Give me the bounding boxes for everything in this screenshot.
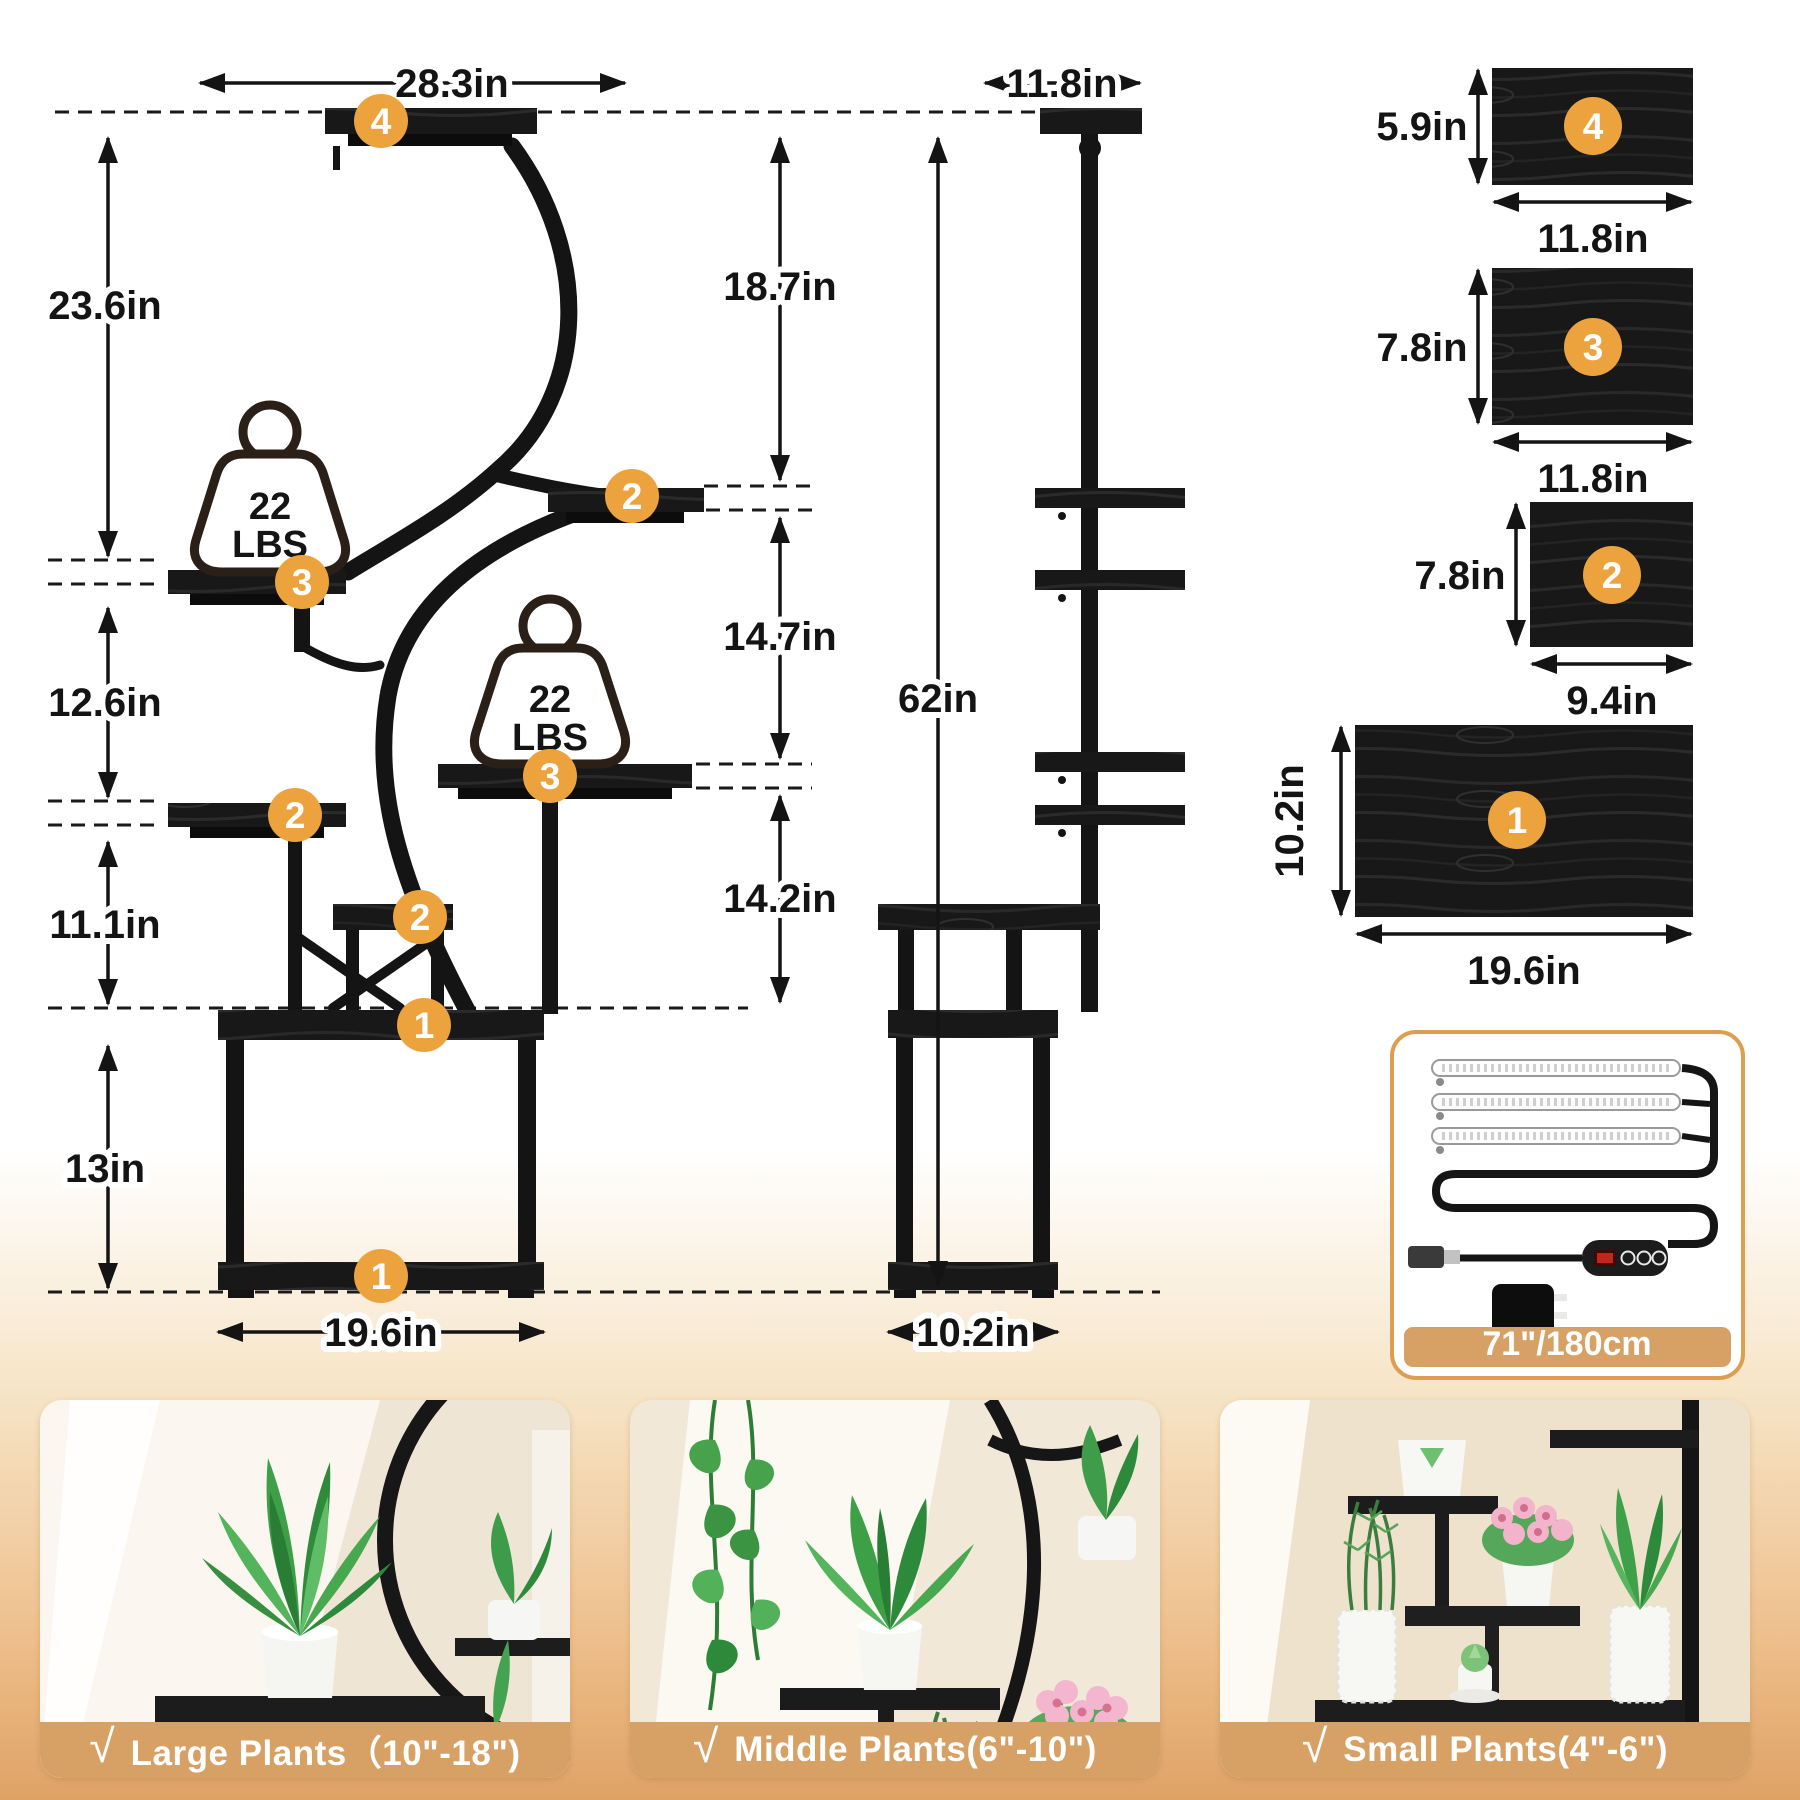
led-light-bars <box>1432 1060 1680 1154</box>
svg-text:3: 3 <box>540 756 561 797</box>
photo-label-text: Small Plants(4"-6") <box>1343 1730 1668 1770</box>
svg-text:1: 1 <box>371 1256 392 1297</box>
check-icon: √ <box>89 1723 114 1769</box>
shelf-panel-2: 2 7.8in 9.4in <box>1414 502 1693 723</box>
svg-text:1: 1 <box>414 1005 435 1046</box>
panel2-width: 9.4in <box>1566 679 1657 723</box>
dim-h4: 13in <box>65 1147 145 1191</box>
dim-h1: 23.6in <box>48 284 161 328</box>
shelf-panel-4: 4 5.9in 11.8in <box>1376 68 1693 261</box>
dim-h2: 12.6in <box>48 681 161 725</box>
badge-shelf-3-right: 3 <box>523 749 577 803</box>
photo-label-large-plants: √ Large Plants（10"-18") <box>40 1722 570 1778</box>
panel4-width: 11.8in <box>1537 217 1648 261</box>
panel1-width: 19.6in <box>1467 949 1580 993</box>
badge-base: 1 <box>354 1249 408 1303</box>
grow-light-kit: 71"/180cm <box>1392 1032 1743 1378</box>
svg-text:2: 2 <box>410 897 431 938</box>
weight-value: 22 <box>249 486 291 528</box>
kit-length-label: 71"/180cm <box>1482 1325 1651 1363</box>
photo-label-text: Large Plants（10"-18") <box>131 1725 521 1776</box>
photo-label-middle-plants: √ Middle Plants(6"-10") <box>630 1722 1160 1778</box>
svg-text:1: 1 <box>1507 800 1528 841</box>
svg-text:4: 4 <box>1583 106 1604 147</box>
photo-card-small-plants: √ Small Plants(4"-6") <box>1220 1400 1750 1778</box>
panel3-height: 7.8in <box>1376 326 1467 370</box>
shelf-panel-3: 3 7.8in 11.8in <box>1376 268 1693 501</box>
photo-label-text: Middle Plants(6"-10") <box>734 1730 1097 1770</box>
panel2-height: 7.8in <box>1414 554 1505 598</box>
svg-text:2: 2 <box>285 795 306 836</box>
svg-text:4: 4 <box>371 101 392 142</box>
panel3-width: 11.8in <box>1537 457 1648 501</box>
weight-capacity-icon-left: 22 LBS <box>194 405 345 572</box>
panel4-height: 5.9in <box>1376 105 1467 149</box>
check-icon: √ <box>1302 1723 1327 1769</box>
badge-shelf-2-mid: 2 <box>393 890 447 944</box>
dim-side-base-width: 10.2in <box>916 1311 1029 1355</box>
shelf-panel-1: 1 10.2in 19.6in <box>1268 725 1693 993</box>
top-pot <box>1398 1440 1466 1496</box>
dim-r1: 18.7in <box>723 265 836 309</box>
badge-shelf-2-left: 2 <box>268 788 322 842</box>
photo-label-small-plants: √ Small Plants(4"-6") <box>1220 1722 1750 1778</box>
photo-card-middle-plants: √ Middle Plants(6"-10") <box>630 1400 1160 1778</box>
dim-top-width: 28.3in <box>395 62 508 106</box>
svg-text:2: 2 <box>622 476 643 517</box>
svg-text:2: 2 <box>1602 555 1623 596</box>
photo-card-large-plants: √ Large Plants（10"-18") <box>40 1400 570 1778</box>
svg-text:3: 3 <box>292 562 313 603</box>
svg-text:3: 3 <box>1583 327 1604 368</box>
product-dimension-diagram: 22 LBS 22 LBS <box>0 0 1800 1800</box>
badge-shelf-4: 4 <box>354 94 408 148</box>
badge-shelf-2-right: 2 <box>605 469 659 523</box>
dim-base-width: 19.6in <box>324 1311 437 1355</box>
badge-platform: 1 <box>397 998 451 1052</box>
dim-r3: 14.2in <box>723 877 836 921</box>
weight-value: 22 <box>529 679 571 721</box>
inline-controller <box>1582 1240 1668 1276</box>
dim-r2: 14.7in <box>723 615 836 659</box>
panel1-height: 10.2in <box>1268 764 1312 877</box>
weight-capacity-icon-right: 22 LBS <box>474 599 625 764</box>
check-icon: √ <box>693 1723 718 1769</box>
dim-total-height: 62in <box>898 677 978 721</box>
dim-side-top-width: 11.8in <box>1006 62 1117 106</box>
badge-shelf-3-left: 3 <box>275 555 329 609</box>
dim-h3: 11.1in <box>49 903 160 947</box>
